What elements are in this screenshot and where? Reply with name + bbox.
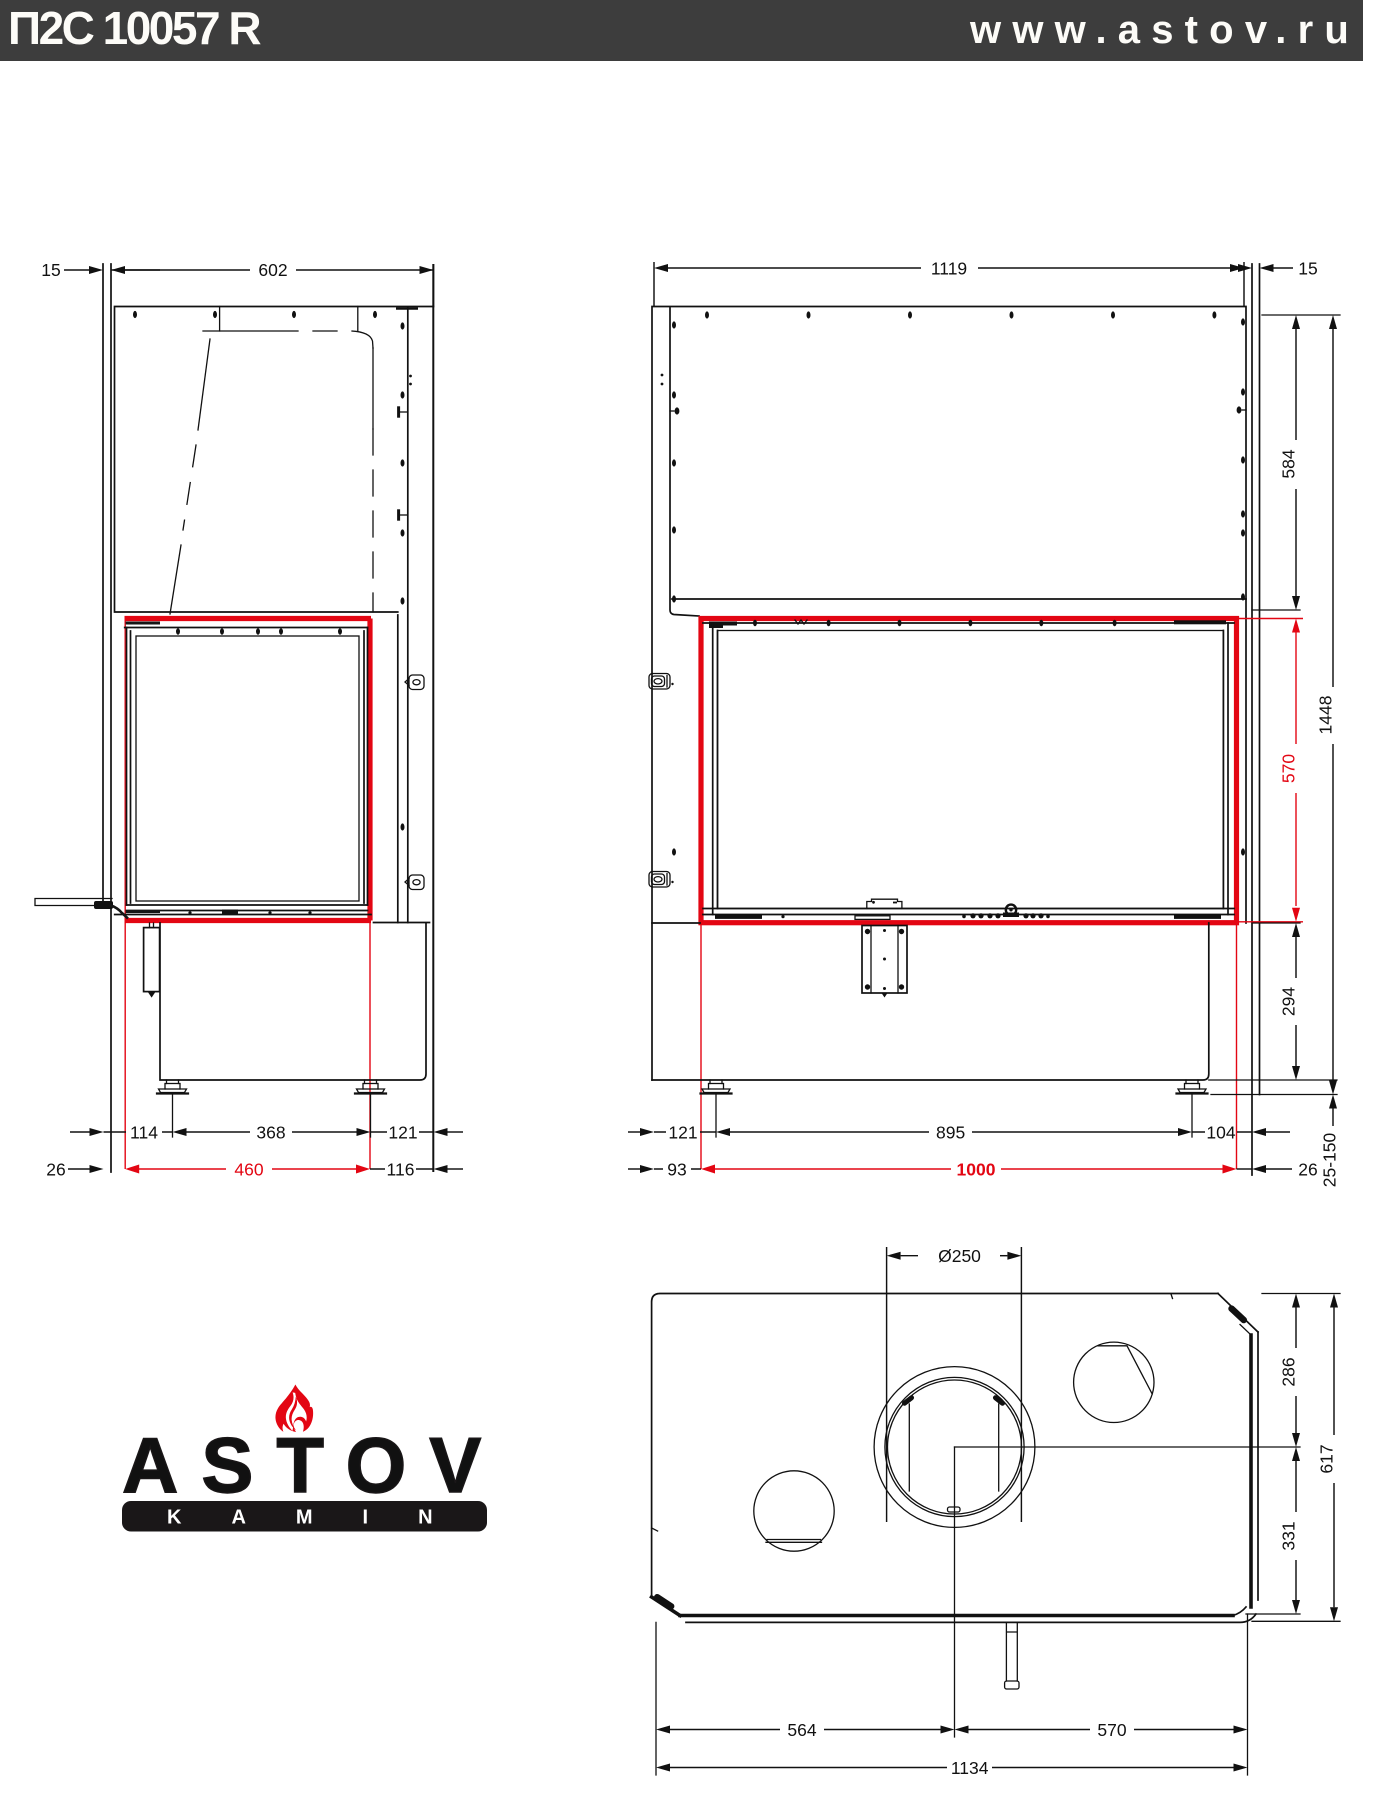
svg-text:25-150: 25-150 xyxy=(1320,1132,1340,1187)
svg-text:1000: 1000 xyxy=(957,1160,996,1180)
svg-text:104: 104 xyxy=(1206,1123,1235,1143)
svg-text:15: 15 xyxy=(1298,259,1317,279)
svg-text:570: 570 xyxy=(1279,754,1299,783)
svg-text:121: 121 xyxy=(388,1123,417,1143)
svg-text:26: 26 xyxy=(1298,1160,1317,1180)
svg-text:Ø250: Ø250 xyxy=(938,1246,981,1266)
svg-text:116: 116 xyxy=(387,1160,415,1180)
svg-text:460: 460 xyxy=(234,1160,263,1180)
svg-text:ASTOV: ASTOV xyxy=(122,1421,504,1509)
svg-text:П2С 10057 R: П2С 10057 R xyxy=(8,2,261,54)
svg-text:93: 93 xyxy=(667,1160,686,1180)
svg-text:286: 286 xyxy=(1279,1357,1299,1386)
svg-text:617: 617 xyxy=(1317,1444,1337,1473)
svg-text:KAMIN: KAMIN xyxy=(167,1507,483,1529)
svg-text:www.astov.ru: www.astov.ru xyxy=(969,8,1360,52)
svg-text:584: 584 xyxy=(1279,449,1299,478)
svg-text:1119: 1119 xyxy=(931,259,967,279)
svg-text:368: 368 xyxy=(256,1123,285,1143)
svg-text:15: 15 xyxy=(41,260,60,280)
svg-text:1448: 1448 xyxy=(1316,696,1336,735)
svg-text:121: 121 xyxy=(668,1123,697,1143)
svg-text:1134: 1134 xyxy=(951,1758,989,1778)
svg-text:294: 294 xyxy=(1279,987,1299,1016)
svg-text:331: 331 xyxy=(1279,1521,1299,1550)
svg-text:564: 564 xyxy=(787,1720,816,1740)
svg-text:570: 570 xyxy=(1097,1720,1126,1740)
svg-text:114: 114 xyxy=(130,1123,158,1143)
svg-text:895: 895 xyxy=(936,1123,965,1143)
svg-text:26: 26 xyxy=(46,1160,65,1180)
svg-text:602: 602 xyxy=(258,260,287,280)
